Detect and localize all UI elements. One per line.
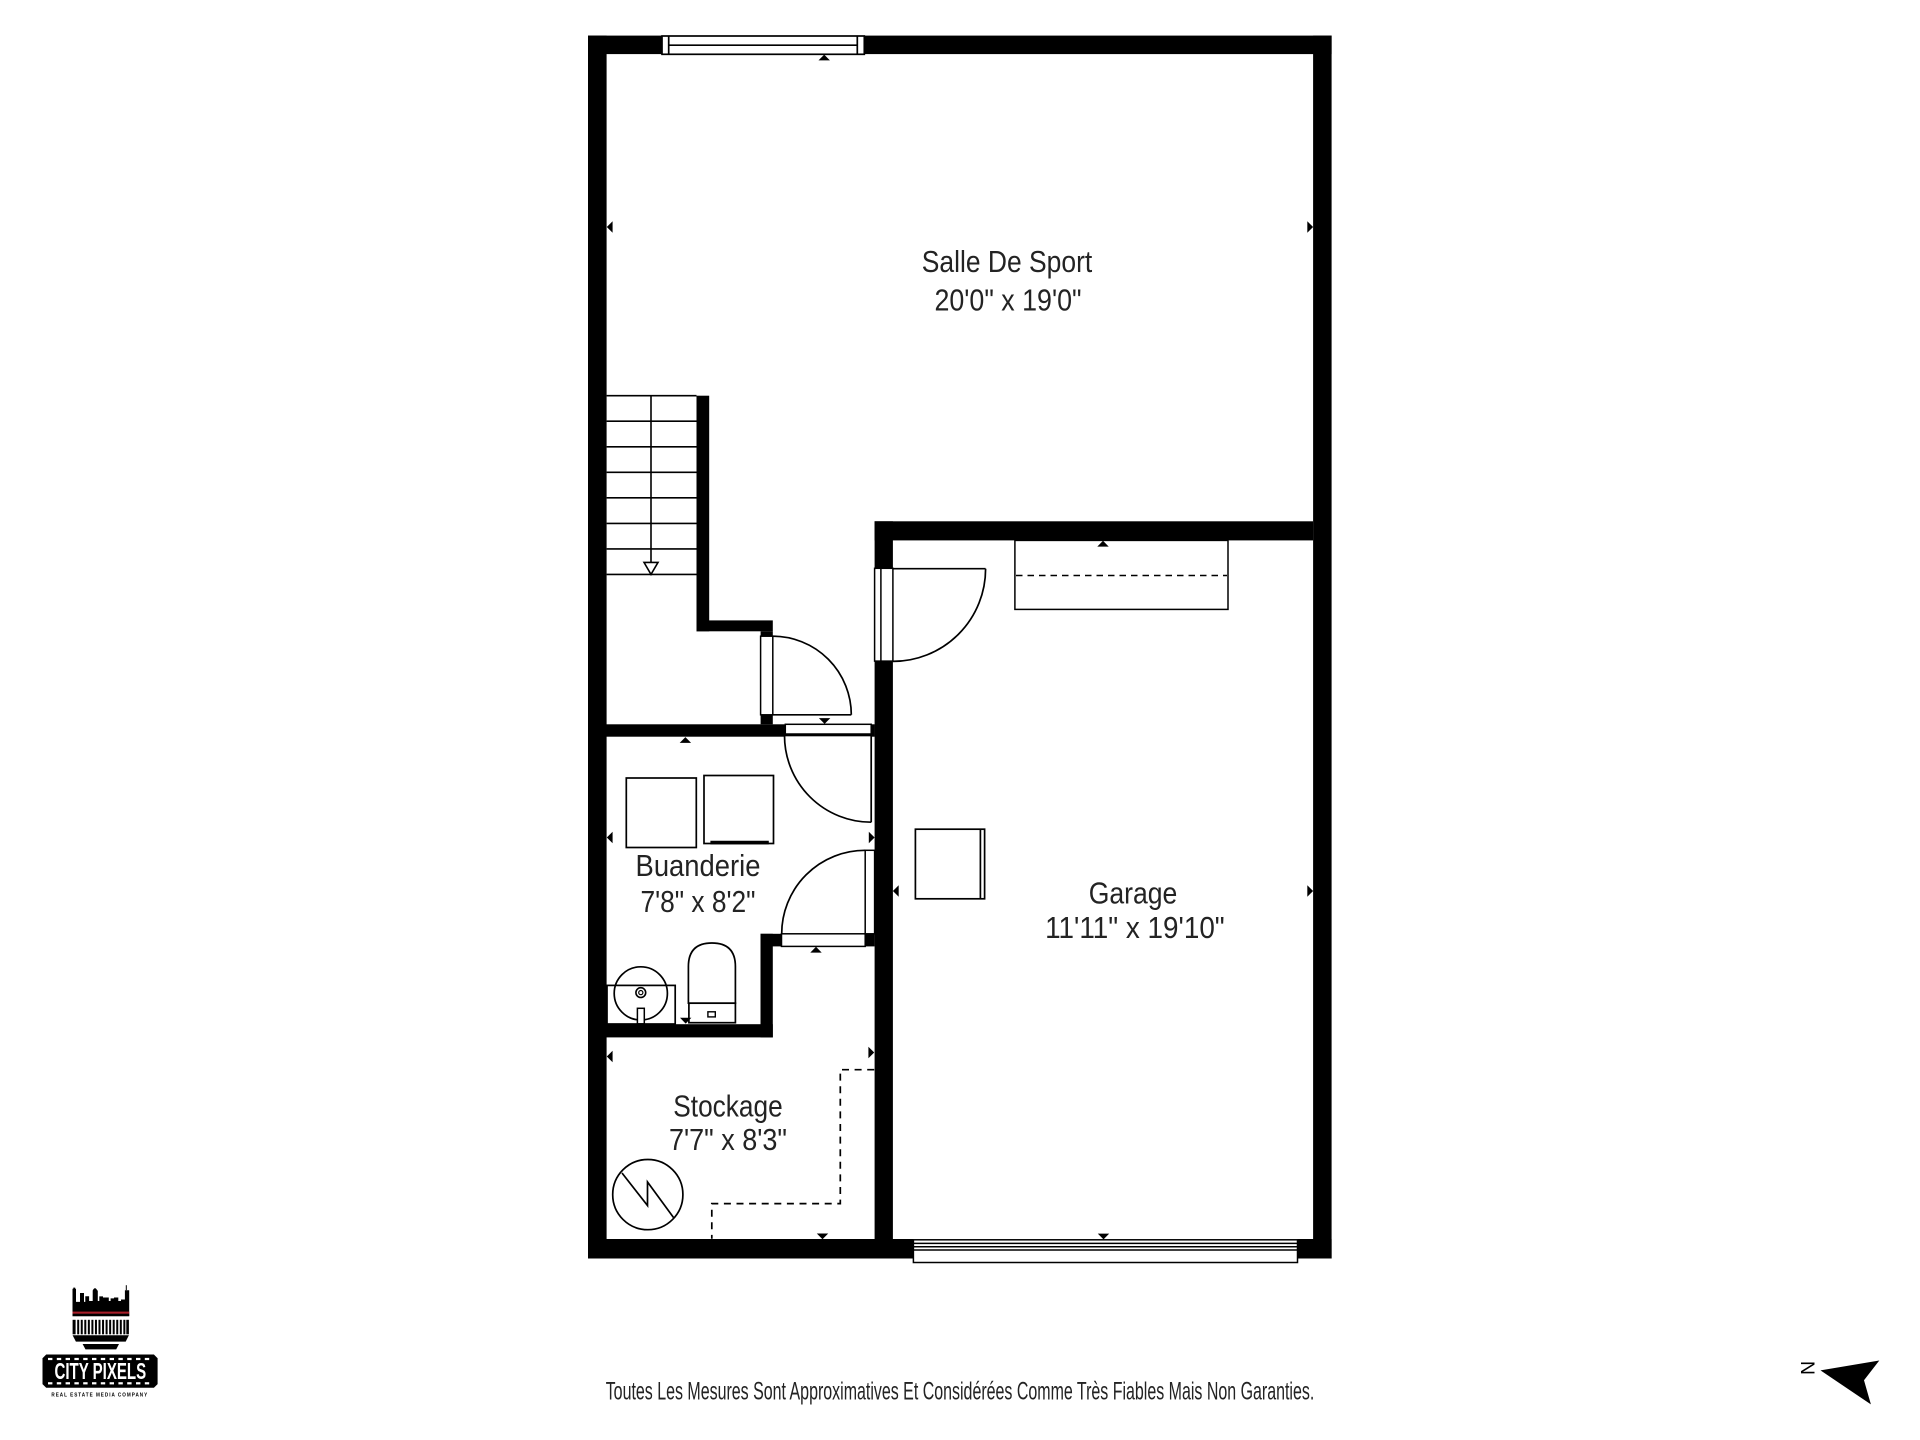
svg-text:Buanderie: Buanderie <box>636 849 761 883</box>
svg-text:REAL ESTATE MEDIA COMPANY: REAL ESTATE MEDIA COMPANY <box>51 1392 148 1398</box>
svg-text:Garage: Garage <box>1089 876 1178 910</box>
svg-text:Toutes Les Mesures Sont Approx: Toutes Les Mesures Sont Approximatives E… <box>606 1379 1315 1406</box>
svg-text:20'0" x 19'0": 20'0" x 19'0" <box>935 284 1082 318</box>
svg-text:Stockage: Stockage <box>673 1089 782 1123</box>
svg-text:7'8" x 8'2": 7'8" x 8'2" <box>640 885 755 919</box>
svg-text:N: N <box>1796 1361 1818 1375</box>
svg-text:7'7" x 8'3": 7'7" x 8'3" <box>669 1123 787 1157</box>
svg-text:CITY PIXELS: CITY PIXELS <box>54 1359 146 1385</box>
svg-text:11'11" x 19'10": 11'11" x 19'10" <box>1045 911 1225 945</box>
svg-text:Salle De Sport: Salle De Sport <box>922 245 1093 279</box>
